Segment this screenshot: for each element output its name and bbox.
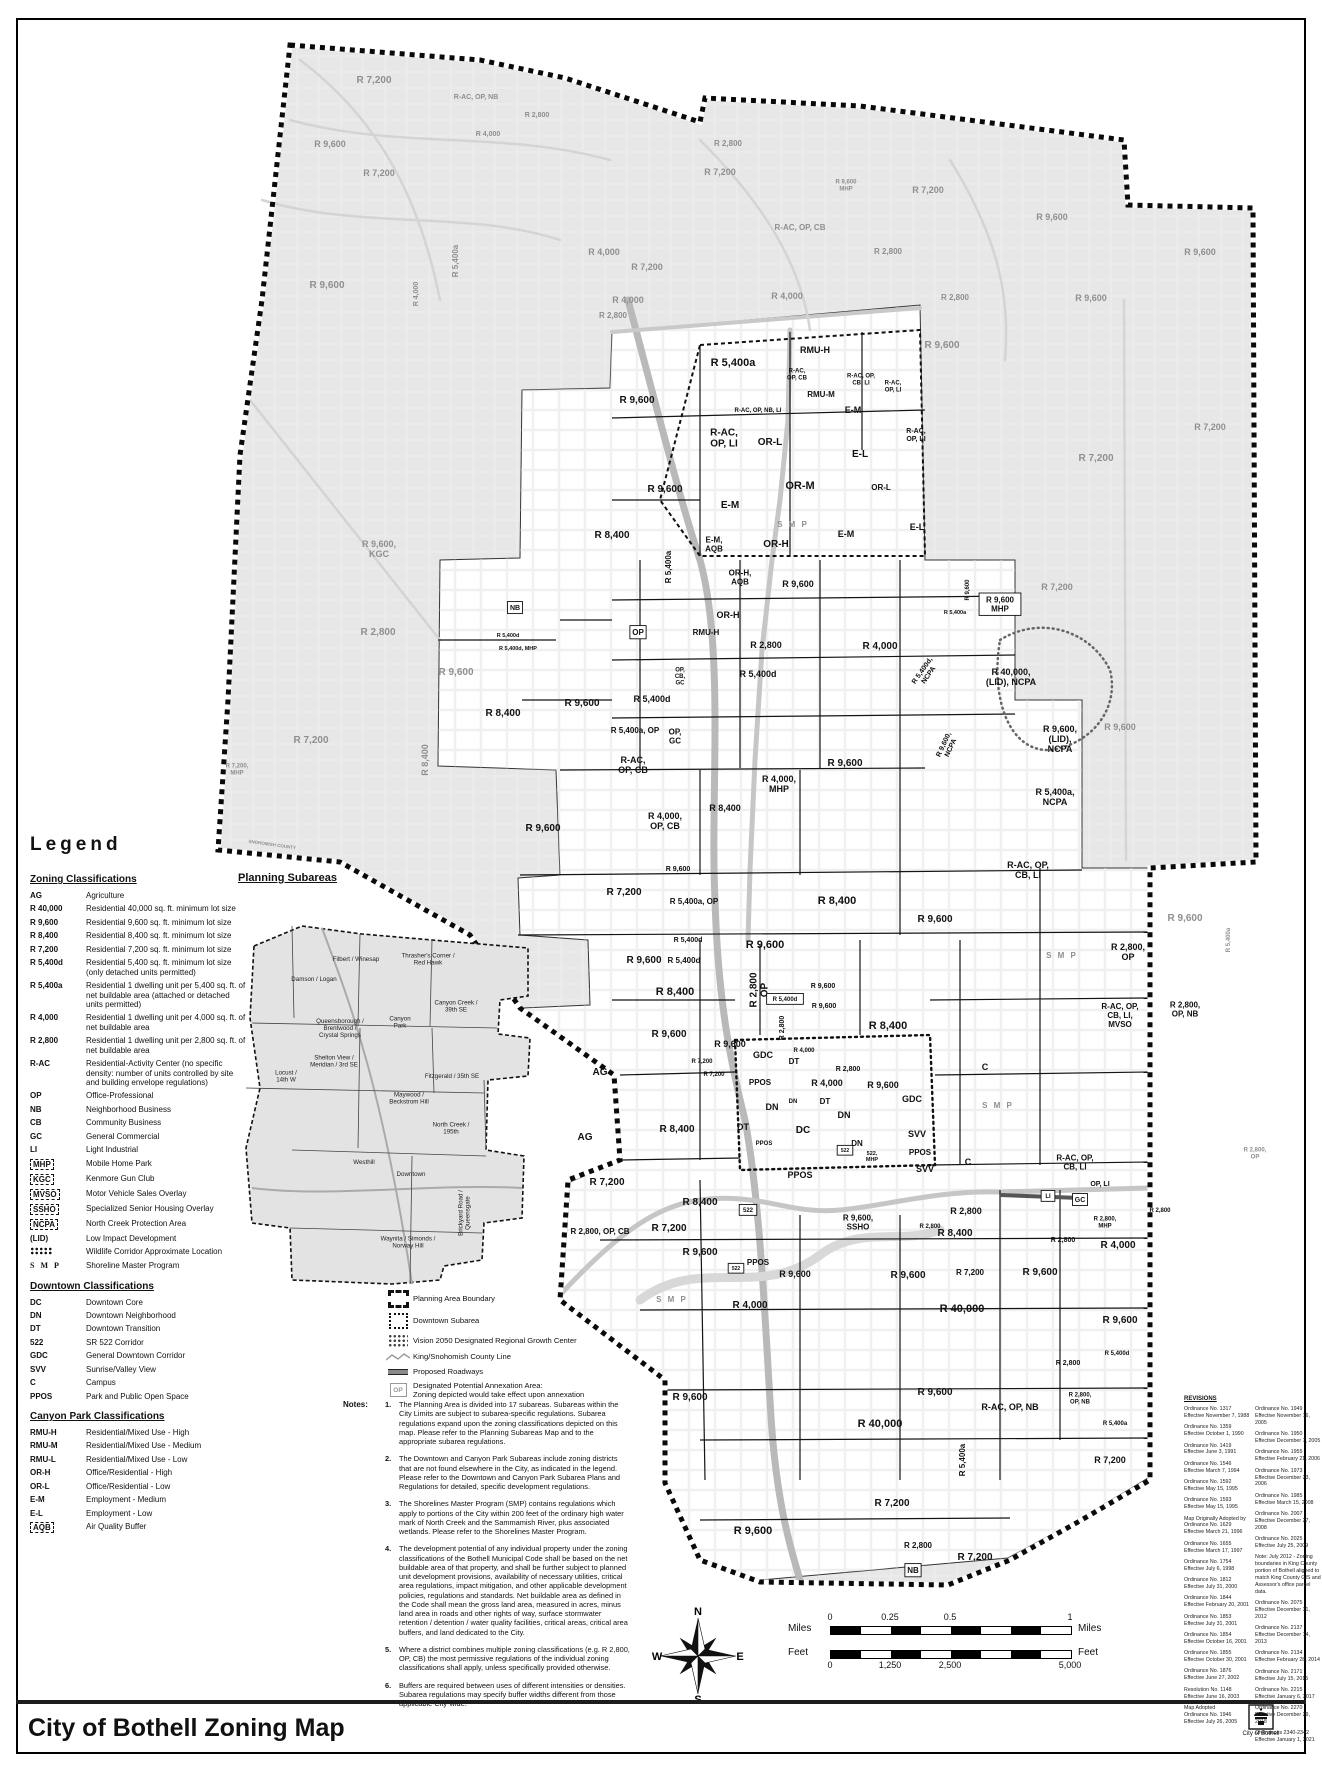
legend-item-desc: Community Business [86, 1118, 161, 1127]
legend-item: R 40,000Residential 40,000 sq. ft. minim… [30, 904, 248, 913]
zone-label: R 9,600 [525, 823, 560, 834]
scale-tick: 1,250 [879, 1660, 902, 1670]
legend-item-desc: Office/Residential - Low [86, 1482, 170, 1491]
revision-entry: Ordinance No. 1844 Effective February 20… [1184, 1595, 1250, 1609]
map-symbol-item: Planning Area Boundary [383, 1290, 683, 1308]
legend-item-desc: Residential 5,400 sq. ft. minimum lot si… [86, 958, 248, 977]
zone-label: DN [789, 1099, 798, 1105]
legend-item-desc: Office-Professional [86, 1091, 153, 1100]
legend-item: DCDowntown Core [30, 1298, 248, 1307]
revisions-header: REVISIONS [1184, 1396, 1322, 1402]
zone-label: OR-H [717, 610, 740, 620]
map-symbol-item: King/Snohomish County Line [383, 1352, 683, 1362]
zone-label: R 2,800 [599, 311, 628, 320]
legend-item-desc: Residential 1 dwelling unit per 4,000 sq… [86, 1013, 248, 1032]
zigzag-symbol-icon [383, 1352, 413, 1362]
zone-label: DT [737, 1122, 749, 1132]
zone-label: R 4,000,OP, CB [648, 811, 682, 831]
zone-label: R 8,400 [485, 708, 520, 719]
zone-label: R 8,400 [709, 803, 741, 813]
legend-item: (LID)Low Impact Development [30, 1234, 248, 1243]
legend-item-code: R 9,600 [30, 918, 86, 927]
zone-label: R 4,000 [732, 1300, 767, 1311]
zone-label: R 9,600 [682, 1247, 717, 1258]
zone-label: R 9,600 [647, 484, 682, 495]
zone-label: GDC [902, 1094, 923, 1104]
downtown-classifications-list: DCDowntown CoreDNDowntown NeighborhoodDT… [30, 1298, 248, 1402]
zone-label: DC [796, 1125, 810, 1136]
legend-item-code: GC [30, 1132, 86, 1141]
zone-label: R-AC,OP, LI [885, 381, 902, 394]
zone-label: R 9,600 [626, 955, 661, 966]
zone-label: R 9,600,SSHO [843, 1214, 873, 1232]
legend-item-code: MHP [30, 1159, 86, 1170]
zone-label: R 2,800 [360, 627, 395, 638]
page-title: City of Bothell Zoning Map [28, 1714, 345, 1743]
legend-item-code: R 7,200 [30, 945, 86, 954]
legend-item-code: RMU-M [30, 1441, 86, 1450]
legend-item-desc: Neighborhood Business [86, 1105, 171, 1114]
zone-label: R 7,200 [356, 75, 391, 86]
legend-item: R 8,400Residential 8,400 sq. ft. minimum… [30, 931, 248, 940]
zone-label: R 9,600 [924, 340, 959, 351]
legend-item-desc: Specialized Senior Housing Overlay [86, 1204, 214, 1215]
op-symbol-icon: OP [383, 1383, 413, 1397]
map-symbol-item: Proposed Roadways [383, 1367, 683, 1376]
legend-item-desc: Residential-Activity Center (no specific… [86, 1059, 248, 1087]
legend-item-desc: Air Quality Buffer [86, 1522, 146, 1533]
zoning-classifications-list: AGAgricultureR 40,000Residential 40,000 … [30, 891, 248, 1271]
legend-item-code: (LID) [30, 1234, 86, 1243]
zone-label: R 2,800 [919, 1224, 941, 1230]
zone-label: E-L [910, 522, 925, 532]
zone-label: OR-L [871, 483, 891, 492]
zone-label: R-AC, OP, CB [775, 223, 826, 232]
revision-entry: Ordinance No. 2171 Effective July 15, 20… [1255, 1669, 1321, 1683]
zone-label: R 9,600 [890, 1270, 925, 1281]
map-symbol-label: Proposed Roadways [413, 1367, 483, 1376]
compass-rose: N S W E [652, 1604, 744, 1709]
zone-label: DT [789, 1057, 800, 1066]
legend-item: R 5,400dResidential 5,400 sq. ft. minimu… [30, 958, 248, 977]
legend-item: OR-HOffice/Residential - High [30, 1468, 248, 1477]
legend-item: AGAgriculture [30, 891, 248, 900]
zone-label: R 7,200 [606, 887, 641, 898]
scale-tick: 5,000 [1059, 1660, 1082, 1670]
legend-item-code: SVV [30, 1365, 86, 1374]
road-symbol-icon [383, 1369, 413, 1375]
cluster-symbol-icon [383, 1334, 413, 1347]
notes-panel: Notes: 1.The Planning Area is divided in… [343, 1400, 631, 1716]
zone-label: OP, LI [1090, 1181, 1109, 1188]
revision-entry: Ordinance No. 1317 Effective November 7,… [1184, 1406, 1250, 1420]
zone-label: R 5,400d [1105, 1351, 1130, 1357]
map-symbol-item: OPDesignated Potential Annexation Area: … [383, 1381, 683, 1399]
zone-label: PPOS [909, 1148, 932, 1157]
subarea-label: Maywood /Beckstrom Hill [389, 1092, 429, 1106]
legend-item: R 9,600Residential 9,600 sq. ft. minimum… [30, 918, 248, 927]
legend-item: AQBAir Quality Buffer [30, 1522, 248, 1533]
zone-label: OR-M [785, 480, 814, 492]
legend-item-code: S M P [30, 1261, 86, 1270]
dot-symbol-icon [383, 1313, 413, 1329]
downtown-classifications-header: Downtown Classifications [30, 1281, 248, 1292]
zone-label: OR-L [758, 437, 782, 448]
zone-label: E-M [838, 529, 855, 539]
legend-item-code: R 2,800 [30, 1036, 86, 1055]
legend-item-desc: Residential/Mixed Use - Medium [86, 1441, 201, 1450]
zone-label: R 40,000,(LID), NCPA [986, 667, 1037, 687]
zone-label: R 4,000 [476, 131, 501, 138]
zone-label: R 2,800,OP, NB [1069, 1393, 1092, 1406]
revision-entry: Ordinance No. 1854 Effective October 16,… [1184, 1632, 1250, 1646]
legend-item: R 5,400aResidential 1 dwelling unit per … [30, 981, 248, 1009]
scale-tick: 0 [827, 1660, 832, 1670]
revision-entry: Ordinance No. 2134 Effective February 28… [1255, 1650, 1321, 1664]
zone-label: R 8,400 [659, 1124, 694, 1135]
legend-item: OR-LOffice/Residential - Low [30, 1482, 248, 1491]
zone-label: R 7,200 [1078, 453, 1113, 464]
zone-label: R 7,200 [1041, 582, 1073, 592]
legend-item-desc: Light Industrial [86, 1145, 138, 1154]
revision-entry: Ordinance No. 1955 Effective February 21… [1255, 1449, 1321, 1463]
revision-entry: Ordinance No. 1655 Effective March 17, 1… [1184, 1541, 1250, 1555]
zone-label: R 9,600 [811, 983, 836, 990]
legend-item-code: DN [30, 1311, 86, 1320]
legend-item-code: NB [30, 1105, 86, 1114]
canyon-park-classifications-list: RMU-HResidential/Mixed Use - HighRMU-MRe… [30, 1428, 248, 1533]
zone-label: R 9,600 [619, 395, 654, 406]
zone-label: R 4,000 [1100, 1240, 1135, 1251]
scale-tick: 0.25 [881, 1612, 899, 1622]
zone-label: R 7,200 [874, 1498, 909, 1509]
zone-label: R 2,800 [941, 293, 970, 302]
legend-item-code: KGC [30, 1174, 86, 1185]
zone-label: R 7,200 [651, 1223, 686, 1234]
zone-label: OR-H [763, 539, 789, 550]
revision-entry: Note: July 2012 - Zoning boundaries in K… [1255, 1554, 1321, 1595]
zone-label: R 5,400a [711, 357, 757, 369]
revision-entry: Ordinance No. 1754 Effective July 6, 199… [1184, 1559, 1250, 1573]
legend-item-code: AG [30, 891, 86, 900]
zone-label: R 40,000 [858, 1418, 903, 1430]
zone-label: OP [632, 628, 644, 637]
legend-item: MHPMobile Home Park [30, 1159, 248, 1170]
zone-label: R 8,400 [682, 1197, 717, 1208]
revision-entry: Ordinance No. 2075 Effective December 31… [1255, 1600, 1321, 1621]
revision-entry: Map Originally Adopted by Ordinance No. … [1184, 1516, 1250, 1537]
scale-bars: MilesMiles00.250.51FeetFeet01,2502,5005,… [788, 1612, 1118, 1680]
zoning-classifications-header: Zoning Classifications [30, 874, 248, 885]
legend-item-code: 522 [30, 1338, 86, 1347]
zone-label: R 9,600 [564, 698, 599, 709]
legend-item-code: OR-L [30, 1482, 86, 1491]
subarea-label: Westhill [353, 1159, 375, 1166]
zone-label: R 40,000 [940, 1303, 985, 1315]
zone-label: R 7,200 [1094, 1455, 1126, 1465]
legend-item-code: OR-H [30, 1468, 86, 1477]
legend-item-desc: General Commercial [86, 1132, 159, 1141]
city-logo: City of Bothell [1238, 1704, 1284, 1737]
zone-label: R 2,800 [836, 1066, 861, 1073]
legend-item-code: RMU-L [30, 1455, 86, 1464]
scale-bar: MilesMiles00.250.51 [788, 1612, 1118, 1646]
legend-item-desc: Sunrise/Valley View [86, 1365, 156, 1374]
legend-item: NBNeighborhood Business [30, 1105, 248, 1114]
zone-label: R 5,400a [664, 550, 673, 583]
zone-label: SVV [908, 1129, 926, 1139]
zone-label: R 2,800 [874, 247, 903, 256]
zone-label: R 5,400a [451, 244, 460, 277]
revisions-column-1: Ordinance No. 1317 Effective November 7,… [1184, 1406, 1250, 1749]
legend-item-code: PPOS [30, 1392, 86, 1401]
zone-label: R 9,600 [917, 1387, 952, 1398]
revision-entry: Ordinance No. 1419 Effective June 3, 199… [1184, 1443, 1250, 1457]
zone-label: RMU-H [800, 345, 830, 355]
legend-item-desc: Downtown Transition [86, 1324, 160, 1333]
zone-label: R 5,400d [674, 937, 703, 944]
subarea-label: Brickyard Road /Queensgate [458, 1190, 472, 1236]
zone-label: 522,MHP [866, 1151, 879, 1163]
legend-item-code: DT [30, 1324, 86, 1333]
legend-item: CCampus [30, 1378, 248, 1387]
note-item: 5.Where a district combines multiple zon… [385, 1645, 631, 1673]
zone-label: R 7,200 [589, 1177, 624, 1188]
legend-item-desc: Low Impact Development [86, 1234, 176, 1243]
zone-label: R 5,400a [958, 1443, 967, 1476]
zone-label: OP,CB,GC [675, 667, 686, 686]
revision-entry: Ordinance No. 1812 Effective July 31, 20… [1184, 1577, 1250, 1591]
zone-label: R 9,600 [1022, 1267, 1057, 1278]
zone-label: E-M,AQB [705, 536, 723, 554]
zone-label: R 7,200 [704, 167, 736, 177]
revision-entry: Ordinance No. 1876 Effective June 27, 20… [1184, 1668, 1250, 1682]
revision-entry: Ordinance No. 2215 Effective January 6, … [1255, 1687, 1321, 1701]
note-item: 1.The Planning Area is divided into 17 s… [385, 1400, 631, 1446]
legend-item-desc: Residential 7,200 sq. ft. minimum lot si… [86, 945, 231, 954]
subarea-label: Shelton View /Meridian / 3rd SE [310, 1055, 358, 1069]
scale-bar: FeetFeet01,2502,5005,000 [788, 1646, 1118, 1680]
legend-item: PPOSPark and Public Open Space [30, 1392, 248, 1401]
legend-item: DNDowntown Neighborhood [30, 1311, 248, 1320]
notes-list: 1.The Planning Area is divided into 17 s… [343, 1400, 631, 1708]
map-symbol-label: Designated Potential Annexation Area: Zo… [413, 1381, 584, 1399]
zone-label: C [982, 1062, 989, 1072]
legend-item-desc: Residential 1 dwelling unit per 5,400 sq… [86, 981, 248, 1009]
notes-label: Notes: [343, 1400, 368, 1409]
zone-label: R 8,400 [656, 986, 695, 998]
zone-label: R 9,600 [812, 1003, 837, 1010]
scale-tick: 0.5 [944, 1612, 957, 1622]
zone-label: PPOS [747, 1258, 770, 1267]
zone-label: R 5,400a, OP [611, 726, 660, 735]
zone-label: R 5,400a [1103, 1421, 1128, 1427]
zone-label: R-AC,OP, LI [906, 428, 925, 443]
zone-label: R 8,400 [869, 1020, 908, 1032]
zone-label: S M P [777, 520, 809, 529]
legend-item: RMU-MResidential/Mixed Use - Medium [30, 1441, 248, 1450]
legend-item-desc: Residential 1 dwelling unit per 2,800 sq… [86, 1036, 248, 1055]
legend-item-desc: Employment - Low [86, 1509, 152, 1518]
subarea-label: Locust /14th W [275, 1070, 297, 1084]
legend-item-desc: Office/Residential - High [86, 1468, 172, 1477]
zone-label: R 9,600 [734, 1525, 773, 1537]
zone-label: R 5,400d [668, 956, 701, 965]
subarea-label: Damson / Logan [291, 976, 337, 983]
zone-label: R 4,000 [862, 641, 897, 652]
zone-label: R 4,000 [771, 291, 803, 301]
zone-label: DT [820, 1097, 831, 1106]
zone-label: R 5,400a [944, 610, 967, 616]
zone-label: S M P [1046, 951, 1078, 960]
revision-entry: Ordinance No. 1546 Effective March 7, 19… [1184, 1461, 1250, 1475]
revision-entry: Ordinance No. 2007 Effective December 27… [1255, 1511, 1321, 1532]
zone-label: R 7,200 [1194, 422, 1226, 432]
checker-symbol-icon [383, 1290, 413, 1308]
zone-label: R 9,600 [965, 579, 971, 601]
zone-label: PPOS [787, 1170, 812, 1180]
legend-item: GCGeneral Commercial [30, 1132, 248, 1141]
planning-subareas-inset: Planning Subareas Filbert / WinesapThras… [232, 872, 534, 1293]
zone-label: R 9,600 [1167, 913, 1202, 924]
zone-label: GDC [753, 1050, 774, 1060]
subarea-label: Downtown [397, 1171, 426, 1178]
map-symbol-item: Downtown Subarea [383, 1313, 683, 1329]
zone-label: R 4,000 [612, 295, 644, 305]
legend-item-desc: Residential/Mixed Use - High [86, 1428, 189, 1437]
zone-label: RMU-M [807, 390, 835, 399]
map-symbols-legend: Planning Area BoundaryDowntown SubareaVi… [383, 1290, 683, 1404]
legend-item: R 7,200Residential 7,200 sq. ft. minimum… [30, 945, 248, 954]
zone-label: E-M [721, 500, 739, 511]
zone-label: R-AC,OP, CB [787, 369, 808, 382]
legend-item: Wildlife Corridor Approximate Location [30, 1247, 248, 1257]
legend-item: R 4,000Residential 1 dwelling unit per 4… [30, 1013, 248, 1032]
canyon-park-classifications-header: Canyon Park Classifications [30, 1411, 248, 1422]
zone-label: R 2,800 [904, 1541, 933, 1550]
revision-entry: Ordinance No. 1950 Effective December 7,… [1255, 1431, 1321, 1445]
subarea-label: Fitzgerald / 35th SE [425, 1073, 479, 1080]
legend-item-desc: Employment - Medium [86, 1495, 166, 1504]
zone-label: R 2,800, OP, CB [571, 1227, 630, 1236]
scale-tick: 0 [827, 1612, 832, 1622]
city-logo-text: City of Bothell [1238, 1731, 1284, 1737]
map-symbol-item: Vision 2050 Designated Regional Growth C… [383, 1334, 683, 1347]
zone-label: R 5,400d [497, 633, 520, 639]
zone-label: R 2,800 [1051, 1237, 1076, 1244]
legend-panel: Legend Zoning Classifications AGAgricult… [30, 834, 248, 1537]
legend-item: R-ACResidential-Activity Center (no spec… [30, 1059, 248, 1087]
zoning-map-page: R 7,200R-AC, OP, NBR 2,800R 4,000R 9,600… [0, 0, 1322, 1770]
zone-label: R 4,000 [811, 1078, 843, 1088]
legend-item-code: LI [30, 1145, 86, 1154]
legend-item-desc: Residential/Mixed Use - Low [86, 1455, 187, 1464]
zone-label: R 7,200 [631, 262, 663, 272]
zone-label: R 2,800 [714, 139, 743, 148]
revision-entry: Ordinance No. 1593 Effective May 15, 199… [1184, 1497, 1250, 1511]
note-item: 3.The Shorelines Master Program (SMP) co… [385, 1499, 631, 1536]
zone-label: LI [1045, 1194, 1051, 1200]
legend-item: S M PShoreline Master Program [30, 1261, 248, 1270]
zone-label: R 7,200 [912, 185, 944, 195]
zone-label: PPOS [756, 1141, 773, 1147]
legend-item-desc: North Creek Protection Area [86, 1219, 186, 1230]
planning-subareas-map: Filbert / WinesapThrasher's Corner /Red … [232, 888, 534, 1288]
revision-entry: Ordinance No. 1853 Effective July 31, 20… [1184, 1614, 1250, 1628]
zone-label: R 2,800 [750, 640, 782, 650]
zone-label: R 5,400d, MHP [499, 646, 537, 652]
legend-item-desc: Wildlife Corridor Approximate Location [86, 1247, 222, 1257]
zone-label: R 9,600 [666, 866, 691, 873]
revision-entry: Ordinance No. 1592 Effective May 15, 199… [1184, 1479, 1250, 1493]
zone-label: R 2,800 [950, 1206, 982, 1216]
map-symbol-label: Planning Area Boundary [413, 1294, 495, 1303]
zone-label: OP,GC [669, 728, 682, 746]
subarea-label: Filbert / Winesap [333, 956, 380, 963]
revision-entry: Resolution No. 1148 Effective June 16, 2… [1184, 1687, 1250, 1701]
zone-label: AG [578, 1132, 593, 1143]
legend-item-code: R 5,400a [30, 981, 86, 1009]
legend-item-desc: Downtown Core [86, 1298, 143, 1307]
compass-w: W [652, 1651, 663, 1663]
legend-item-code: NCPA [30, 1219, 86, 1230]
legend-item: OPOffice-Professional [30, 1091, 248, 1100]
zone-label: R 8,400 [420, 744, 430, 776]
zone-label: RMU-H [693, 628, 720, 637]
legend-item-code: DC [30, 1298, 86, 1307]
legend-item: SVVSunrise/Valley View [30, 1365, 248, 1374]
compass-e: E [736, 1651, 743, 1663]
zone-label: R-AC,OP, CB [618, 755, 648, 775]
zone-label: R 2,800 [779, 1016, 786, 1041]
legend-item-desc: Residential 8,400 sq. ft. minimum lot si… [86, 931, 231, 940]
zone-label: R 4,000 [413, 282, 420, 307]
zone-label: R 9,600 [714, 1039, 746, 1049]
zone-label: R 2,800,OP, NB [1170, 1001, 1200, 1019]
zone-label: R 9,600 [1102, 1315, 1137, 1326]
zone-label: R 9,600 [1075, 293, 1107, 303]
legend-item: RMU-LResidential/Mixed Use - Low [30, 1455, 248, 1464]
zone-label: R 5,400d [739, 669, 776, 679]
legend-item-desc: Residential 9,600 sq. ft. minimum lot si… [86, 918, 231, 927]
city-logo-icon [1248, 1704, 1274, 1730]
legend-item-desc: Mobile Home Park [86, 1159, 152, 1170]
legend-item-code: SSHO [30, 1204, 86, 1215]
zone-label: R 7,200 [363, 168, 395, 178]
zone-label: R 5,400a [1226, 927, 1232, 952]
zone-label: R 9,600 [782, 579, 814, 589]
zone-label: R 9,600 [867, 1080, 899, 1090]
zone-label: 522 [743, 1208, 754, 1214]
legend-item-code: C [30, 1378, 86, 1387]
zone-label: R 2,800 [525, 112, 550, 119]
legend-item-code: R 4,000 [30, 1013, 86, 1032]
zone-label: R 2,800 [1149, 1208, 1171, 1214]
zone-label: NB [907, 1566, 919, 1575]
revision-entry: Ordinance No. 2025 Effective July 25, 20… [1255, 1536, 1321, 1550]
zone-label: R 9,600 [1104, 722, 1136, 732]
legend-item-code: OP [30, 1091, 86, 1100]
legend-item-code: RMU-H [30, 1428, 86, 1437]
zone-label: OR-H,AQB [729, 569, 752, 587]
zone-label: GC [1075, 1197, 1086, 1204]
legend-item: R 2,800Residential 1 dwelling unit per 2… [30, 1036, 248, 1055]
revision-entry: Ordinance No. 1985 Effective March 15, 2… [1255, 1493, 1321, 1507]
legend-item: RMU-HResidential/Mixed Use - High [30, 1428, 248, 1437]
legend-item: MVSOMotor Vehicle Sales Overlay [30, 1189, 248, 1200]
map-symbol-label: Downtown Subarea [413, 1316, 479, 1325]
revision-entry: Ordinance No. 1359 Effective October 1, … [1184, 1424, 1250, 1438]
